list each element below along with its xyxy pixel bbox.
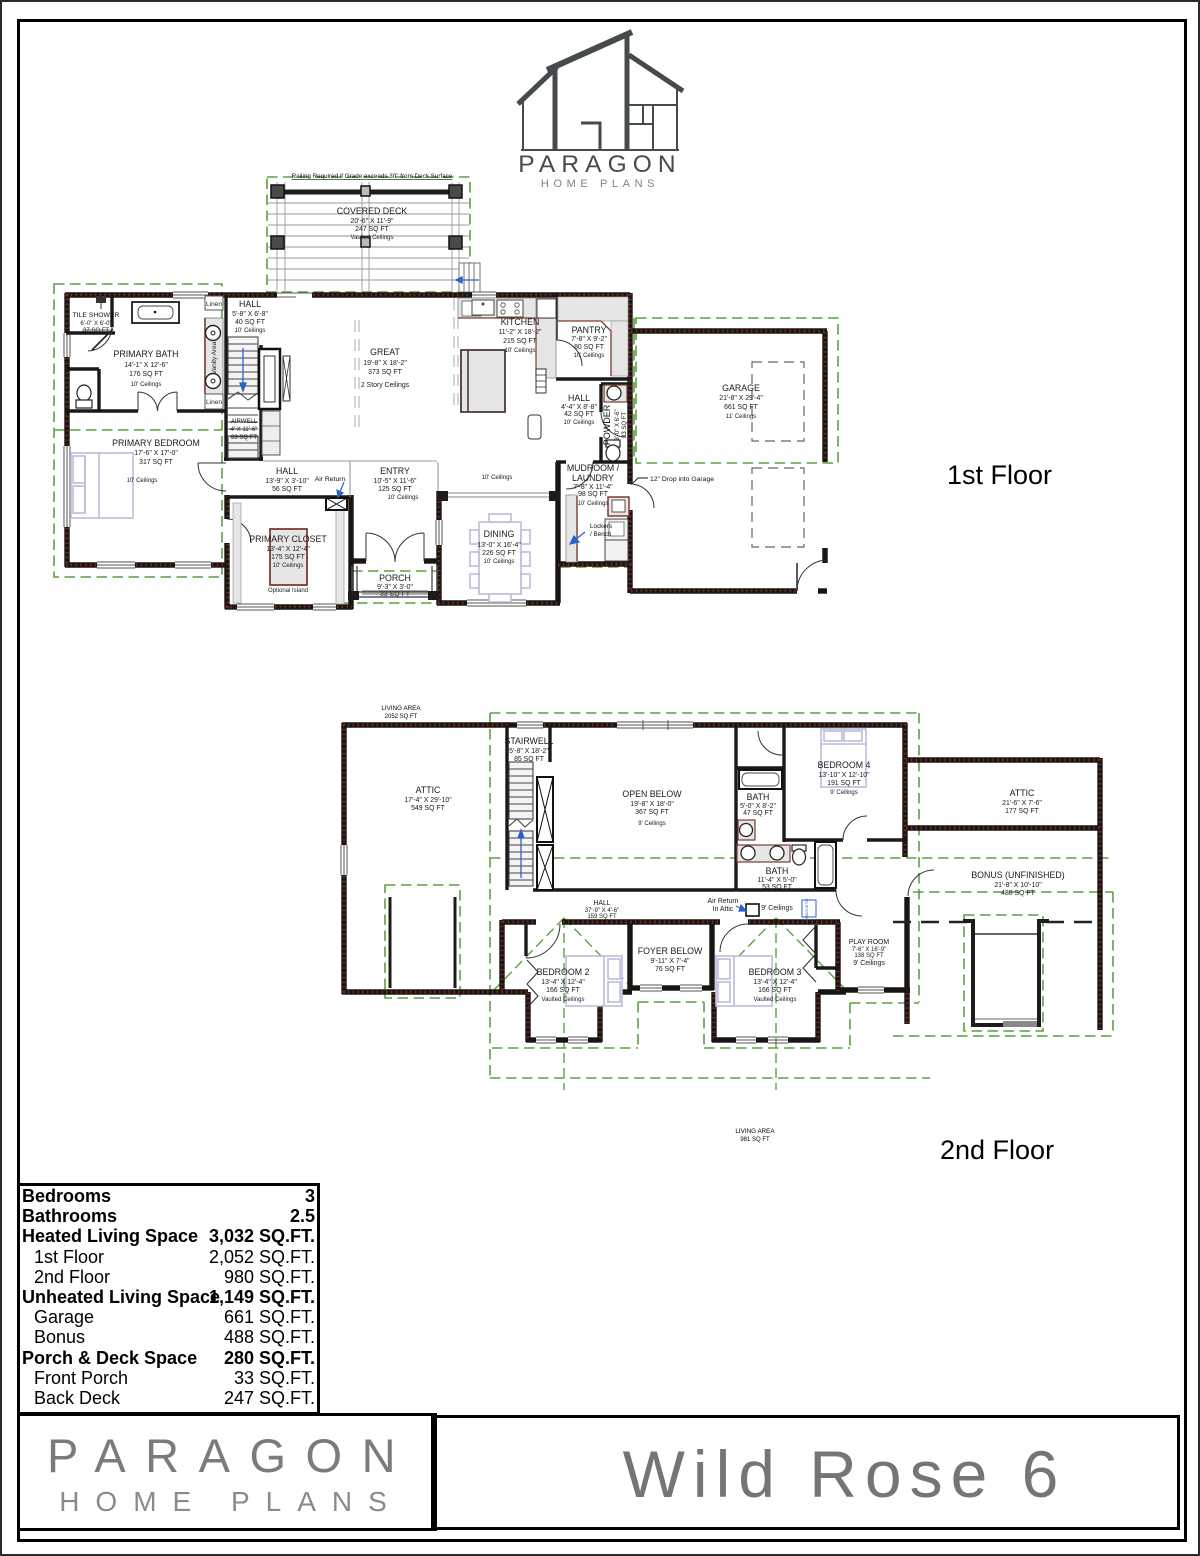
svg-text:10' Ceilings: 10' Ceilings bbox=[564, 420, 595, 426]
svg-text:10' Ceilings: 10' Ceilings bbox=[574, 353, 605, 359]
svg-text:3'-0" X 6'-6": 3'-0" X 6'-6" bbox=[615, 409, 621, 440]
svg-text:ATTIC: ATTIC bbox=[1010, 788, 1035, 798]
svg-text:1st Floor: 1st Floor bbox=[947, 460, 1052, 490]
svg-text:PRIMARY CLOSET: PRIMARY CLOSET bbox=[249, 534, 327, 544]
svg-text:47 SQ FT: 47 SQ FT bbox=[743, 810, 774, 817]
svg-text:2nd Floor: 2nd Floor bbox=[940, 1135, 1054, 1165]
svg-text:10' Ceilings: 10' Ceilings bbox=[235, 328, 266, 334]
svg-text:317 SQ FT: 317 SQ FT bbox=[139, 459, 173, 466]
svg-text:STAIRWELL: STAIRWELL bbox=[504, 736, 553, 746]
svg-text:10' Ceilings: 10' Ceilings bbox=[482, 475, 513, 481]
svg-text:488 SQ FT: 488 SQ FT bbox=[1001, 890, 1035, 897]
svg-text:80 SQ FT: 80 SQ FT bbox=[574, 344, 605, 351]
svg-text:981 SQ FT: 981 SQ FT bbox=[740, 1137, 770, 1143]
svg-text:11'-4" X 5'-0": 11'-4" X 5'-0" bbox=[757, 877, 797, 884]
svg-text:HALL: HALL bbox=[593, 900, 610, 907]
svg-text:HALL: HALL bbox=[239, 299, 261, 309]
svg-text:PRIMARY BEDROOM: PRIMARY BEDROOM bbox=[112, 438, 200, 448]
svg-text:AIRWELL: AIRWELL bbox=[231, 419, 258, 425]
svg-text:POWDER: POWDER bbox=[602, 404, 612, 445]
svg-text:2 Story Ceilings: 2 Story Ceilings bbox=[361, 382, 410, 389]
svg-text:33 SQ FT: 33 SQ FT bbox=[231, 435, 257, 441]
svg-text:BONUS (UNFINISHED): BONUS (UNFINISHED) bbox=[971, 870, 1064, 880]
svg-text:373 SQ FT: 373 SQ FT bbox=[368, 369, 402, 376]
svg-text:4'-4" X 8'-8": 4'-4" X 8'-8" bbox=[561, 404, 597, 411]
svg-text:17'-6" X 17'-0": 17'-6" X 17'-0" bbox=[134, 450, 178, 457]
svg-text:11'-2" X 18'-2": 11'-2" X 18'-2" bbox=[498, 329, 542, 336]
svg-text:PANTRY: PANTRY bbox=[572, 325, 607, 335]
svg-text:PARAGON: PARAGON bbox=[518, 151, 681, 178]
svg-text:LIVING AREA: LIVING AREA bbox=[381, 705, 421, 712]
svg-text:21'-8" X 29'-4": 21'-8" X 29'-4" bbox=[719, 395, 763, 402]
svg-text:BATH: BATH bbox=[766, 866, 789, 876]
svg-text:7'-8" X 9'-2": 7'-8" X 9'-2" bbox=[571, 336, 607, 343]
svg-text:4' X 11'-6": 4' X 11'-6" bbox=[231, 427, 258, 433]
svg-text:BEDROOM 2: BEDROOM 2 bbox=[537, 967, 590, 977]
svg-text:138 SQ FT: 138 SQ FT bbox=[854, 953, 884, 959]
svg-text:11' Ceilings: 11' Ceilings bbox=[726, 414, 756, 420]
svg-text:10' Ceilings: 10' Ceilings bbox=[388, 495, 419, 501]
svg-text:Air Return: Air Return bbox=[707, 898, 738, 905]
svg-text:6'-0" X 6'-0": 6'-0" X 6'-0" bbox=[80, 321, 111, 327]
svg-text:Lockers: Lockers bbox=[590, 523, 612, 530]
svg-text:13'-4" X 12'-4": 13'-4" X 12'-4" bbox=[541, 979, 585, 986]
svg-text:10' Ceilings: 10' Ceilings bbox=[505, 348, 536, 354]
svg-text:BEDROOM 3: BEDROOM 3 bbox=[749, 967, 802, 977]
svg-text:85 SQ FT: 85 SQ FT bbox=[514, 756, 545, 763]
svg-text:9'-11" X 7'-4": 9'-11" X 7'-4" bbox=[650, 958, 690, 965]
svg-text:549 SQ FT: 549 SQ FT bbox=[411, 805, 445, 812]
svg-text:40 SQ FT: 40 SQ FT bbox=[235, 319, 266, 326]
svg-text:7'-8" X 11'-4": 7'-8" X 11'-4" bbox=[573, 484, 613, 491]
svg-text:PORCH: PORCH bbox=[379, 573, 411, 583]
svg-text:661 SQ FT: 661 SQ FT bbox=[724, 404, 758, 411]
svg-text:166 SQ FT: 166 SQ FT bbox=[546, 987, 580, 994]
svg-text:19'-8" X 18'-2": 19'-8" X 18'-2" bbox=[363, 360, 407, 367]
svg-text:9' Ceilings: 9' Ceilings bbox=[638, 821, 666, 827]
svg-text:13'-4" X 12'-4": 13'-4" X 12'-4" bbox=[753, 979, 797, 986]
svg-text:56 SQ FT: 56 SQ FT bbox=[272, 486, 303, 493]
svg-text:BONUS ATTIC: BONUS ATTIC bbox=[805, 898, 809, 922]
svg-text:21'-6" X 7'-6": 21'-6" X 7'-6" bbox=[1002, 800, 1042, 807]
svg-text:DINING: DINING bbox=[484, 529, 515, 539]
svg-text:9' Ceilings: 9' Ceilings bbox=[761, 905, 793, 912]
svg-text:53 SQ FT: 53 SQ FT bbox=[762, 884, 793, 891]
svg-text:LIVING AREA: LIVING AREA bbox=[735, 1128, 775, 1135]
svg-text:10' Ceilings: 10' Ceilings bbox=[484, 559, 515, 565]
svg-text:191 SQ FT: 191 SQ FT bbox=[827, 780, 861, 787]
svg-text:98 SQ FT: 98 SQ FT bbox=[578, 491, 609, 498]
svg-text:GREAT: GREAT bbox=[370, 347, 400, 357]
svg-text:TILE SHOWER: TILE SHOWER bbox=[73, 312, 120, 319]
svg-text:175 SQ FT: 175 SQ FT bbox=[271, 554, 305, 561]
svg-text:19'-8" X 18'-0": 19'-8" X 18'-0" bbox=[630, 801, 674, 808]
svg-text:GARAGE: GARAGE bbox=[722, 383, 760, 393]
svg-text:42 SQ FT: 42 SQ FT bbox=[564, 411, 595, 418]
svg-text:PLAY ROOM: PLAY ROOM bbox=[849, 939, 890, 946]
svg-text:/ Bench: / Bench bbox=[590, 531, 612, 538]
svg-text:Railing Required if Grade exce: Railing Required if Grade exceeds 30" fr… bbox=[292, 173, 453, 180]
svg-text:In Attic: In Attic bbox=[713, 906, 734, 913]
svg-text:13'-0" X 16'-4": 13'-0" X 16'-4" bbox=[477, 542, 521, 549]
svg-text:76 SQ FT: 76 SQ FT bbox=[655, 966, 686, 973]
svg-text:5'-0" X 8'-2": 5'-0" X 8'-2" bbox=[740, 803, 776, 810]
svg-text:159 SQ FT: 159 SQ FT bbox=[587, 914, 617, 920]
svg-text:5'-8" X 6'-8": 5'-8" X 6'-8" bbox=[232, 311, 268, 318]
svg-text:367 SQ FT: 367 SQ FT bbox=[635, 809, 669, 816]
svg-text:OPEN BELOW: OPEN BELOW bbox=[622, 789, 682, 799]
svg-text:9' Ceilings: 9' Ceilings bbox=[853, 960, 885, 967]
svg-text:HALL: HALL bbox=[568, 393, 590, 403]
svg-text:Air Return: Air Return bbox=[315, 476, 346, 483]
svg-text:MUDROOM /: MUDROOM / bbox=[567, 463, 620, 473]
svg-text:Vaulted Ceilings: Vaulted Ceilings bbox=[542, 997, 585, 1003]
svg-text:Vaulted Ceilings: Vaulted Ceilings bbox=[754, 997, 797, 1003]
svg-text:ENTRY: ENTRY bbox=[380, 466, 410, 476]
svg-text:10' Ceilings: 10' Ceilings bbox=[127, 478, 158, 484]
svg-text:21'-8" X 10'-10": 21'-8" X 10'-10" bbox=[994, 882, 1042, 889]
svg-text:12" Drop into Garage: 12" Drop into Garage bbox=[650, 476, 714, 483]
svg-text:10' Ceilings: 10' Ceilings bbox=[273, 563, 304, 569]
svg-text:5'-8" X 18'-2": 5'-8" X 18'-2" bbox=[509, 748, 549, 755]
svg-text:215 SQ FT: 215 SQ FT bbox=[503, 338, 537, 345]
svg-text:247 SQ FT: 247 SQ FT bbox=[355, 226, 389, 233]
svg-text:13'-9" X 3'-10": 13'-9" X 3'-10" bbox=[265, 478, 309, 485]
svg-text:13'-10" X 12'-10": 13'-10" X 12'-10" bbox=[818, 772, 870, 779]
svg-text:KITCHEN: KITCHEN bbox=[501, 317, 540, 327]
svg-text:17'-4" X 29'-10": 17'-4" X 29'-10" bbox=[404, 797, 452, 804]
svg-text:2052 SQ FT: 2052 SQ FT bbox=[385, 714, 418, 720]
svg-text:9' Ceilings: 9' Ceilings bbox=[830, 790, 858, 796]
svg-text:166 SQ FT: 166 SQ FT bbox=[758, 987, 792, 994]
svg-text:14'-1" X 12'-6": 14'-1" X 12'-6" bbox=[124, 362, 168, 369]
svg-text:177 SQ FT: 177 SQ FT bbox=[1005, 808, 1039, 815]
svg-text:Linen: Linen bbox=[206, 301, 222, 308]
svg-text:PRIMARY BATH: PRIMARY BATH bbox=[113, 349, 178, 359]
svg-text:HALL: HALL bbox=[276, 466, 298, 476]
svg-text:HOME PLANS: HOME PLANS bbox=[541, 178, 659, 190]
svg-text:Vaulted Ceilings: Vaulted Ceilings bbox=[351, 235, 394, 241]
svg-text:176 SQ FT: 176 SQ FT bbox=[129, 371, 163, 378]
svg-text:33 SQ FT: 33 SQ FT bbox=[622, 412, 628, 438]
svg-text:Linen: Linen bbox=[206, 399, 222, 406]
svg-text:9'-3" X 3'-0": 9'-3" X 3'-0" bbox=[377, 584, 413, 591]
svg-text:13'-4" X 12'-4": 13'-4" X 12'-4" bbox=[266, 546, 310, 553]
svg-text:COVERED DECK: COVERED DECK bbox=[337, 206, 408, 216]
svg-text:Vanity Area: Vanity Area bbox=[211, 341, 218, 374]
svg-text:BATH: BATH bbox=[747, 792, 770, 802]
svg-text:37 SQ FT: 37 SQ FT bbox=[83, 328, 109, 334]
svg-text:BEDROOM 4: BEDROOM 4 bbox=[818, 760, 871, 770]
svg-text:ATTIC: ATTIC bbox=[416, 785, 441, 795]
svg-text:10'-5" X 11'-6": 10'-5" X 11'-6" bbox=[373, 478, 417, 485]
svg-text:226 SQ FT: 226 SQ FT bbox=[482, 550, 516, 557]
svg-text:20'-6" X 11'-9": 20'-6" X 11'-9" bbox=[350, 218, 394, 225]
svg-text:125 SQ FT: 125 SQ FT bbox=[378, 486, 412, 493]
svg-text:Optional Island: Optional Island bbox=[268, 588, 308, 594]
svg-text:FOYER BELOW: FOYER BELOW bbox=[638, 946, 703, 956]
svg-text:LAUNDRY: LAUNDRY bbox=[572, 473, 614, 483]
svg-text:10' Ceilings: 10' Ceilings bbox=[578, 501, 609, 507]
svg-text:10' Ceilings: 10' Ceilings bbox=[131, 382, 162, 388]
